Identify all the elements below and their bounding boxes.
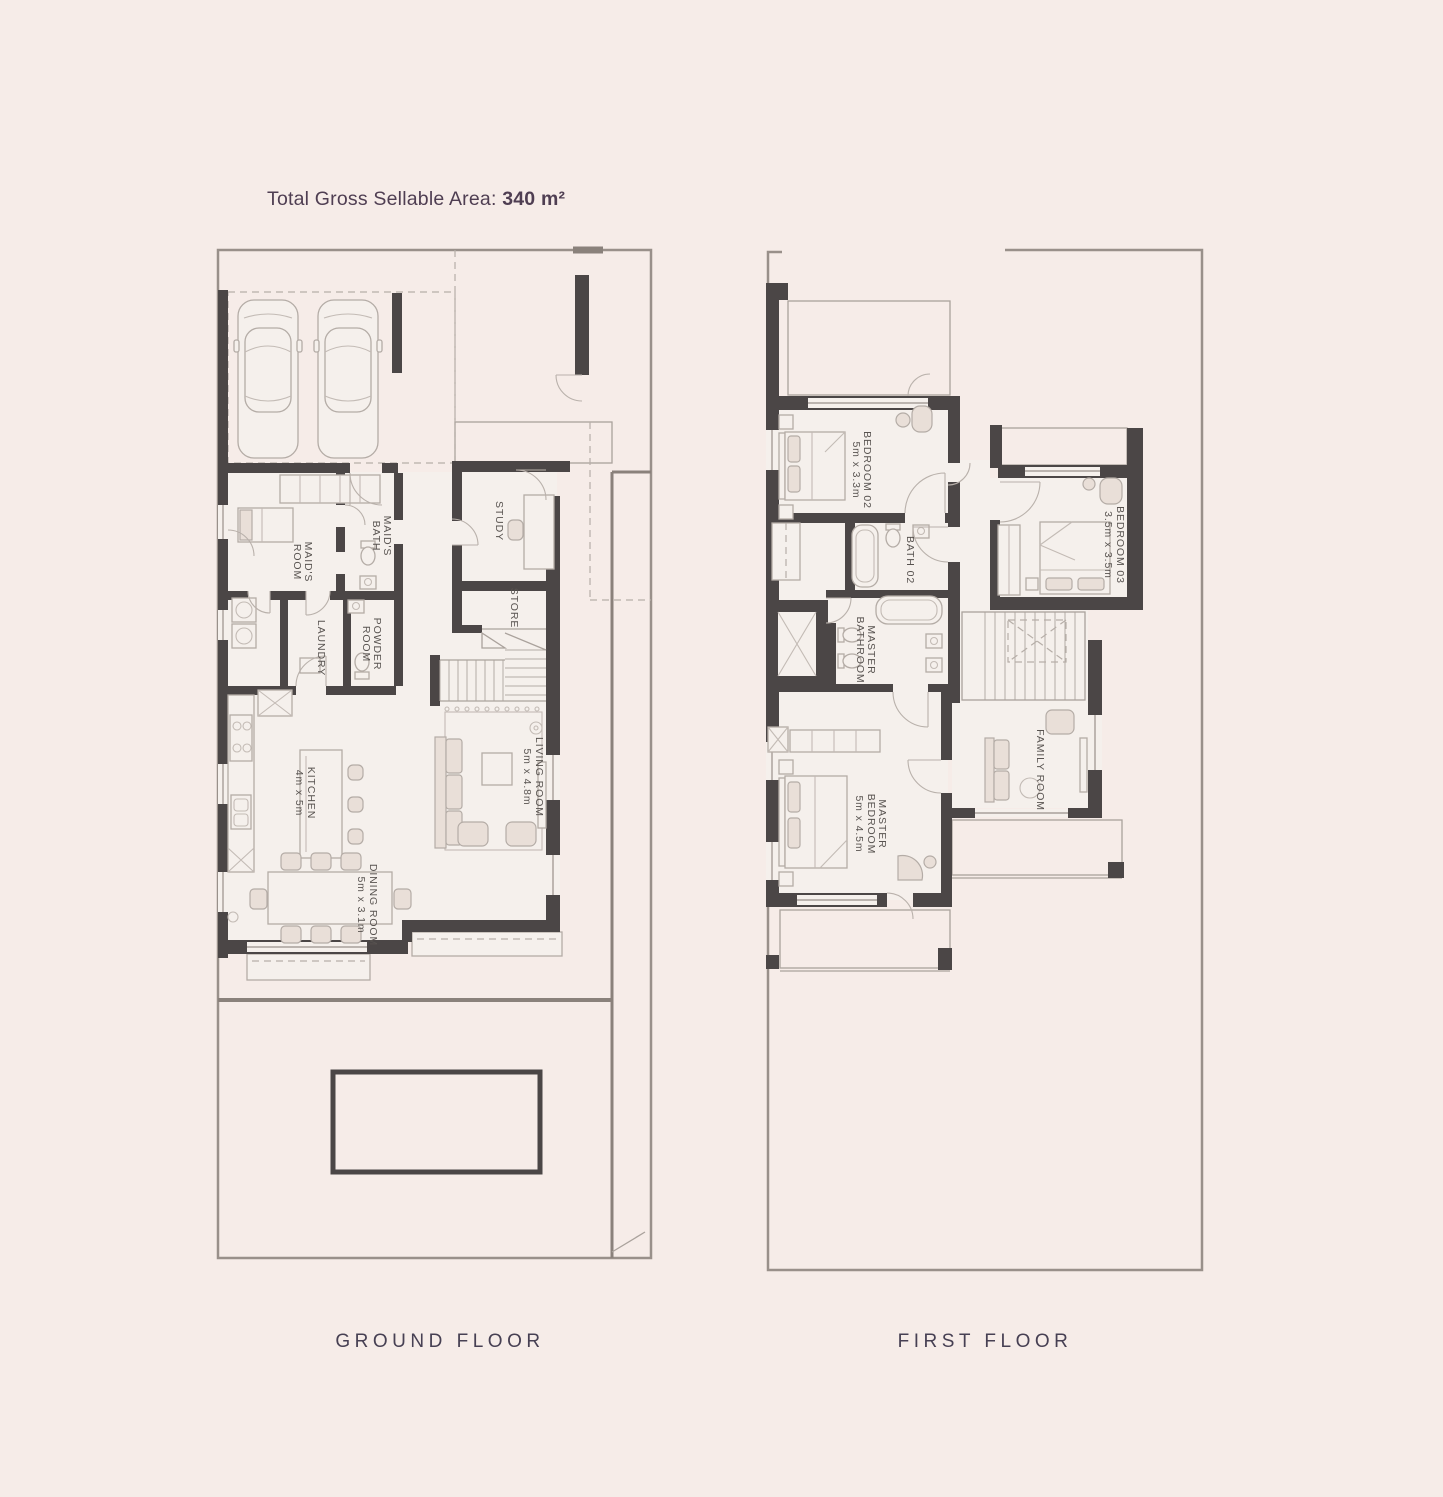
elevator-shaft [778, 612, 816, 676]
chair-icon [1100, 478, 1122, 504]
room-label: STUDY [493, 501, 505, 541]
first-floor-plan: BEDROOM 02 5m x 3.3m BEDROOM 03 3.5m x 3… [755, 240, 1215, 1280]
armchair-icon [458, 822, 488, 846]
room-label: BEDROOM [865, 794, 877, 855]
room-label: KITCHEN [305, 767, 317, 819]
room-label: 4m x 5m [293, 770, 305, 817]
ground-floor-label: GROUND FLOOR [215, 1331, 665, 1353]
pouf-icon [924, 856, 936, 868]
armchair-icon [506, 822, 536, 846]
room-label: LAUNDRY [315, 620, 327, 676]
bed-icon [779, 760, 847, 886]
bathtub-icon [852, 525, 878, 587]
room-label: ROOM [291, 544, 303, 580]
room-label: ROOM [360, 626, 372, 662]
sink-icon [360, 576, 376, 589]
room-label: 5m x 3.1m [355, 876, 367, 933]
balcony [952, 820, 1122, 875]
room-label: BATH [370, 521, 382, 552]
room-label: BATH 02 [904, 536, 916, 584]
balcony [788, 301, 950, 395]
room-label: BATHROOM [854, 616, 866, 683]
room-label: BEDROOM 03 [1114, 506, 1126, 584]
room-label: FAMILY ROOM [1034, 729, 1046, 811]
chair-icon [912, 406, 932, 432]
pouf-icon [1083, 478, 1095, 490]
ground-floor-plan: MAID'S BATH MAID'S ROOM LAUNDRY POWDER R… [210, 240, 660, 1280]
first-floor-label: FIRST FLOOR [760, 1331, 1210, 1353]
floorplan-sheet: Total Gross Sellable Area: 340 m² [0, 0, 1443, 1497]
balcony [780, 910, 950, 968]
wardrobe-icon [280, 475, 380, 503]
wardrobe-icon [790, 730, 880, 752]
title-value: 340 m² [502, 188, 565, 210]
balcony [1000, 428, 1127, 465]
armchair-icon [1046, 710, 1074, 734]
bathtub-icon [876, 596, 942, 624]
title-prefix: Total Gross Sellable Area: [267, 188, 502, 210]
room-label: 3.5m x 3.5m [1102, 511, 1114, 579]
room-label: STORE [508, 588, 520, 628]
tv-console-icon [1080, 738, 1087, 792]
room-label: 5m x 4.8m [521, 748, 533, 805]
page-title: Total Gross Sellable Area: 340 m² [267, 188, 565, 211]
room-label: DINING ROOM [367, 864, 379, 946]
room-label: 5m x 3.3m [850, 441, 862, 498]
room-label: LIVING ROOM [533, 737, 545, 817]
garage [234, 300, 382, 458]
coffee-table-icon [482, 753, 512, 785]
pool-outline [333, 1072, 540, 1172]
pouf-icon [896, 413, 910, 427]
room-label: 5m x 4.5m [853, 795, 865, 852]
toilet-icon [886, 524, 900, 547]
